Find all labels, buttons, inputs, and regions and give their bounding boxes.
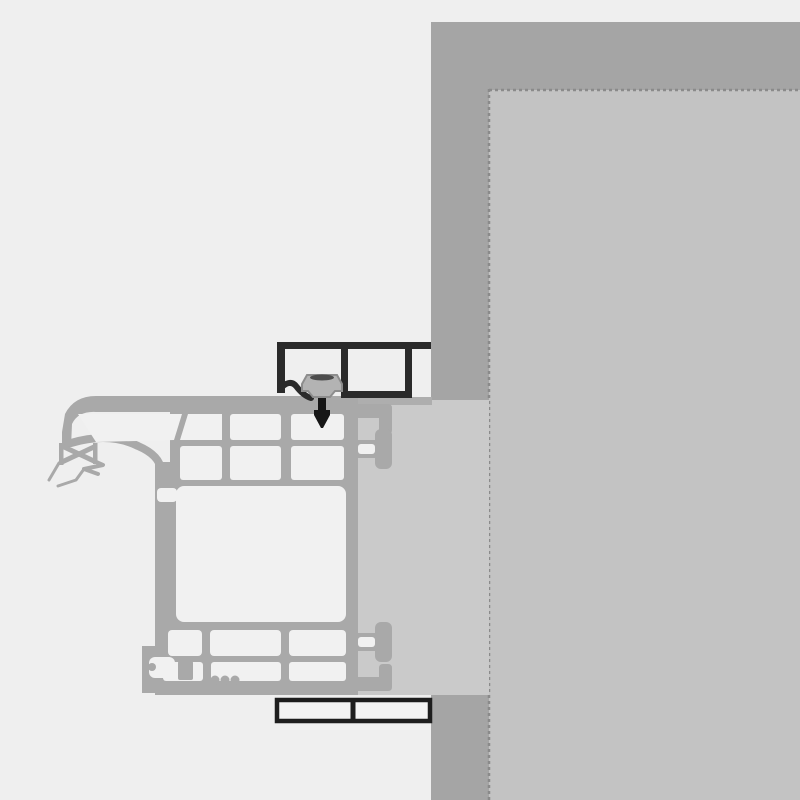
chamber-row2-b bbox=[230, 446, 281, 480]
chamber-row3-c bbox=[289, 630, 346, 656]
t-connector-upper-cap bbox=[375, 429, 392, 469]
profile-tooth bbox=[231, 676, 240, 685]
profile-island-web bbox=[178, 661, 193, 680]
chamber-main bbox=[176, 486, 346, 622]
chamber-row1-b bbox=[230, 414, 281, 440]
clamp-hatch-top bbox=[310, 375, 334, 381]
installation-cross-section-diagram bbox=[0, 0, 800, 800]
bracket-bottom-bar bbox=[341, 391, 412, 398]
hardware-slot bbox=[157, 488, 177, 502]
bracket-right-wall bbox=[405, 342, 412, 398]
frame-flange bbox=[358, 397, 432, 405]
chamber-row2-c bbox=[291, 446, 344, 480]
t-connector-lower-cap bbox=[375, 622, 392, 662]
t-connector-lower-slot bbox=[358, 637, 375, 647]
chamber-top-left bbox=[78, 414, 182, 442]
euro-groove-pin bbox=[148, 663, 156, 671]
chamber-row2-a bbox=[180, 446, 222, 480]
chamber-row4-c bbox=[289, 662, 346, 681]
t-connector-upper-slot bbox=[358, 444, 375, 454]
chamber-row3-b bbox=[210, 630, 281, 656]
chamber-row3-a bbox=[168, 630, 202, 656]
profile-tooth bbox=[221, 676, 230, 685]
interior-wall-surface bbox=[489, 90, 800, 800]
profile-tooth bbox=[211, 676, 220, 685]
trim-strip bbox=[277, 698, 430, 723]
